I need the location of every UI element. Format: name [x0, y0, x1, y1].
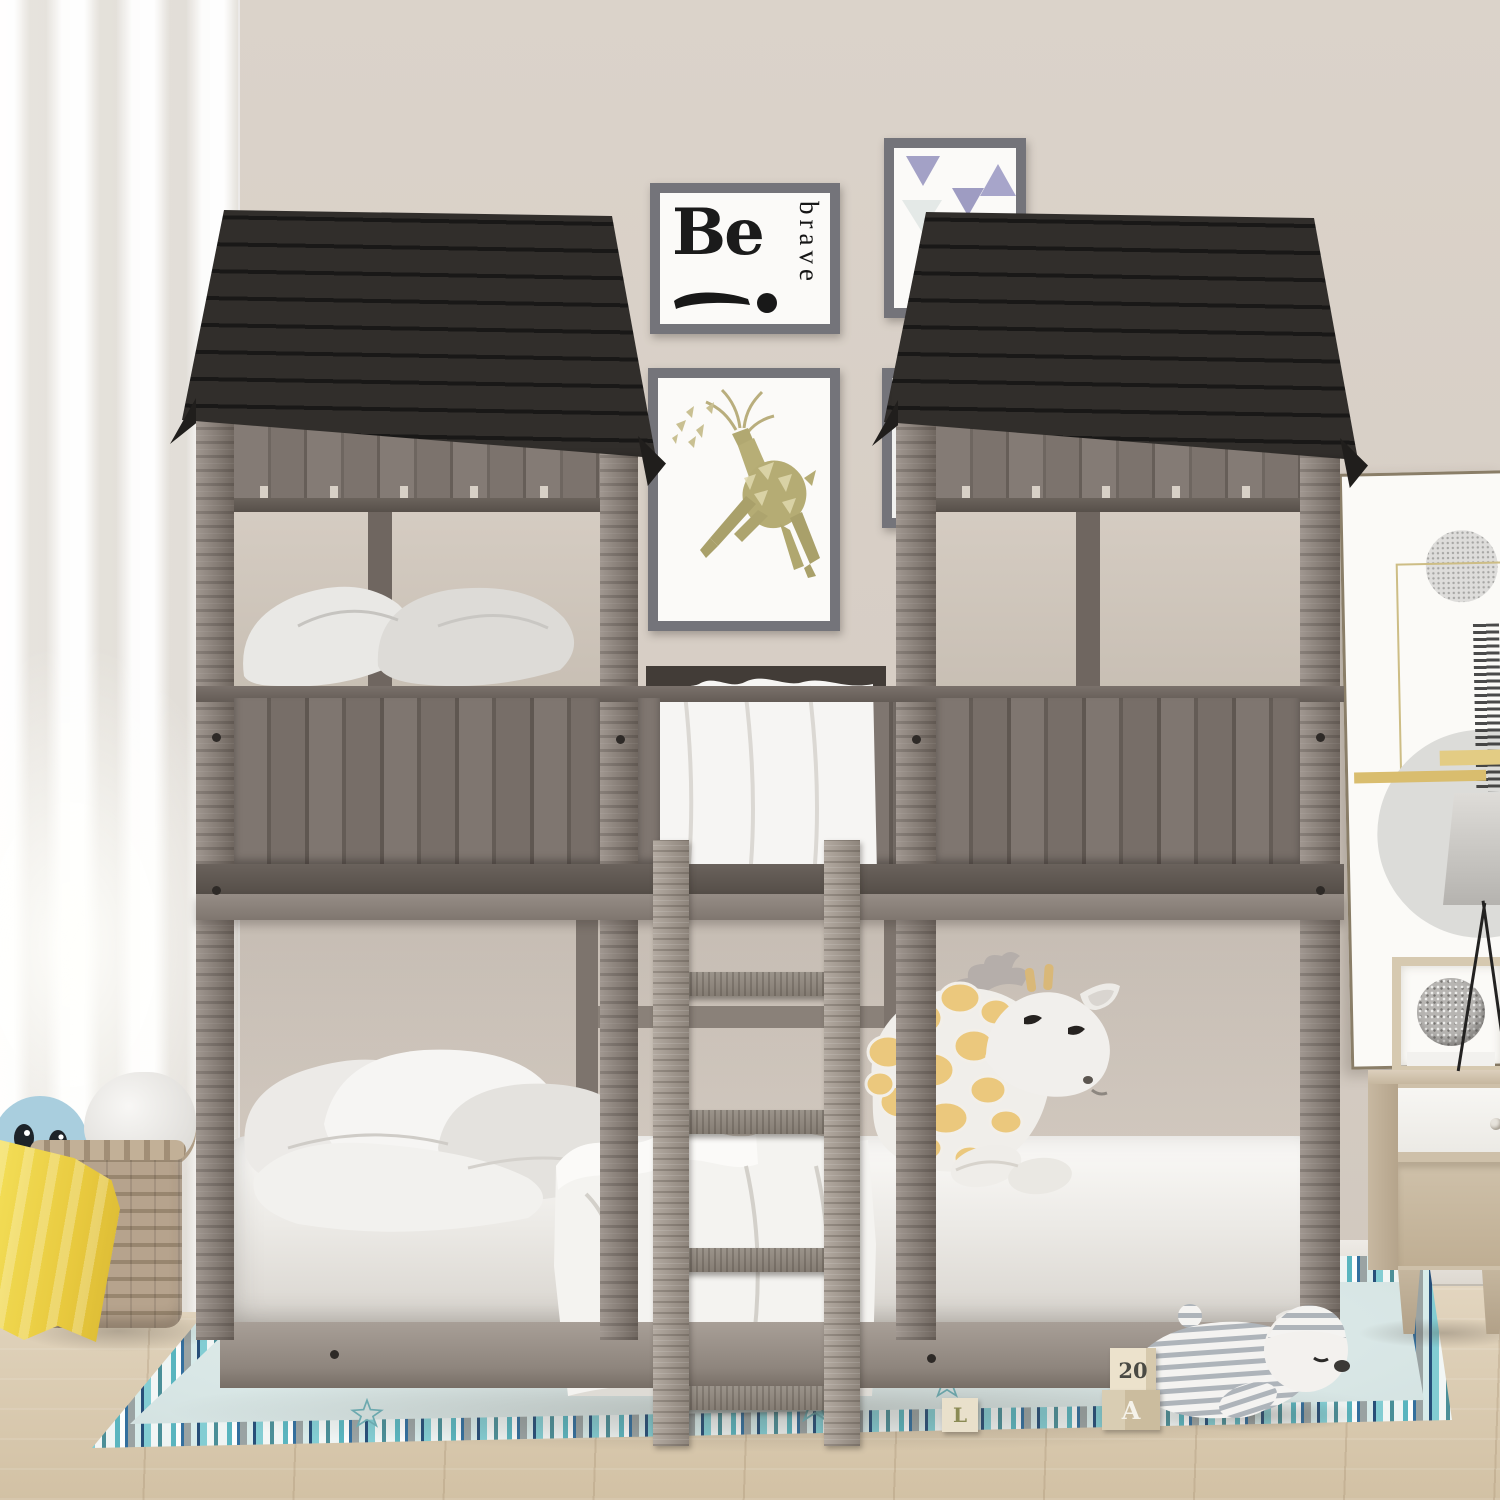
gable-sill-rail [936, 498, 1300, 512]
poster-word-brave: brave [793, 201, 824, 319]
block-letter-text: A [1122, 1396, 1141, 1425]
art-text-scribble [1473, 623, 1500, 792]
toy-block-letter-a: A [1102, 1390, 1160, 1430]
right-tower-window [936, 512, 1300, 690]
deer-poster [648, 368, 840, 631]
nightstand [1368, 1070, 1500, 1332]
bear-nose [1334, 1360, 1350, 1372]
block-number-text: 20 [1118, 1358, 1147, 1383]
bolt-head [212, 733, 221, 742]
deer-fragments [672, 402, 714, 448]
triangle-motif [906, 156, 940, 186]
nightstand-top [1368, 1070, 1500, 1084]
kids-room-scene: Be brave [0, 0, 1500, 1500]
upper-bunk-rail [196, 894, 1344, 920]
nightstand-leg [1398, 1270, 1420, 1334]
toy-block-number: 20 [1110, 1348, 1156, 1392]
block-letter-text: L [953, 1403, 967, 1427]
giraffe-horn [1043, 964, 1054, 991]
right-guard-rail-planks [936, 698, 1300, 866]
poster-word-be: Be [672, 195, 763, 270]
bolt-head [1316, 886, 1325, 895]
ladder-rail [824, 840, 860, 1446]
art-gold-bar [1440, 749, 1500, 765]
nightstand-drawer-wood [1398, 1162, 1500, 1266]
coral-ornament [1417, 978, 1485, 1046]
nightstand-knob [1490, 1118, 1500, 1130]
toy-block-letter-l: L [942, 1398, 978, 1432]
nightstand-leg [1482, 1270, 1500, 1334]
triangle-motif [980, 164, 1016, 196]
nightstand-side [1368, 1082, 1398, 1270]
decor-box-base [1407, 1052, 1495, 1066]
bolt-head [330, 1350, 339, 1359]
bear-ear [1178, 1304, 1202, 1328]
deer-antlers [706, 390, 774, 432]
deer-art [658, 378, 830, 621]
bolt-head [616, 735, 625, 744]
be-brave-poster: Be brave [650, 183, 840, 334]
giraffe-horn [1024, 967, 1036, 992]
striped-bear-plush [1128, 1294, 1360, 1424]
giraffe-nostril [1083, 1076, 1093, 1084]
bolt-head [212, 886, 221, 895]
gable-sill-rail [234, 498, 600, 512]
bolt-head [1316, 733, 1325, 742]
nightstand-drawer-white [1398, 1088, 1500, 1152]
left-guard-rail-planks [234, 698, 600, 866]
ladder-rail [653, 840, 689, 1446]
bolt-head [912, 735, 921, 744]
upper-bunk-pillows [238, 556, 596, 690]
decor-box-frame [1392, 957, 1500, 1075]
bolt-head [927, 1354, 936, 1363]
upper-bunk-rail-dark [196, 864, 1344, 896]
giraffe-mouth [1092, 1090, 1107, 1094]
quill-icon [670, 279, 780, 319]
nightstand-front [1398, 1082, 1500, 1270]
bed-back-post [1076, 512, 1100, 690]
